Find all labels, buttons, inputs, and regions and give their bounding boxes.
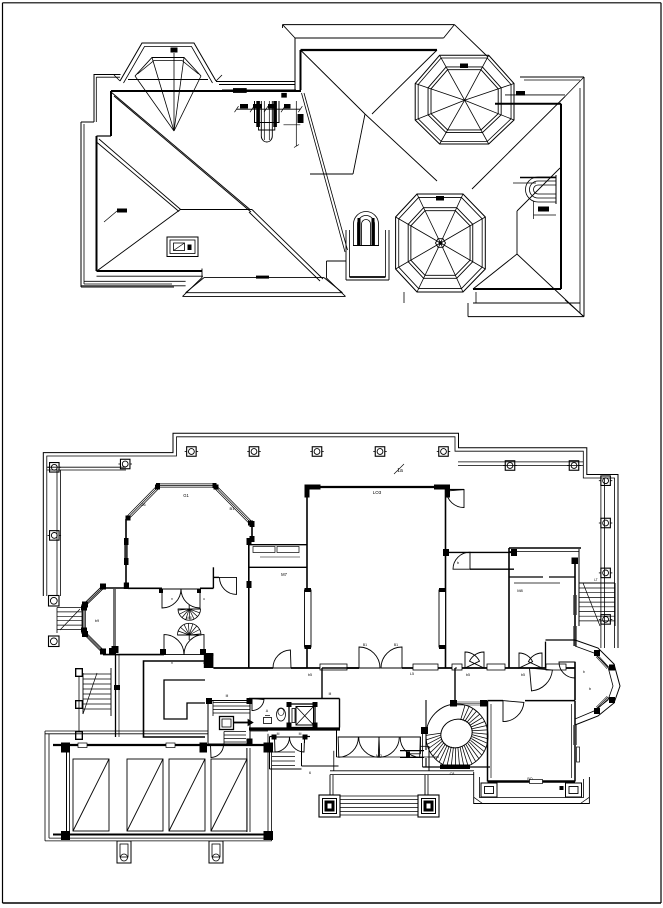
svg-text:u: u xyxy=(203,597,205,601)
svg-text:M: M xyxy=(329,692,332,696)
svg-text:b5: b5 xyxy=(466,673,470,677)
svg-text:MO: MO xyxy=(376,754,382,758)
svg-text:C8: C8 xyxy=(450,772,455,776)
svg-text:6: 6 xyxy=(309,771,311,775)
svg-text:M: M xyxy=(299,732,302,736)
svg-text:1a: 1a xyxy=(397,468,403,474)
svg-text:n: n xyxy=(171,661,173,665)
svg-text:b: b xyxy=(589,687,591,691)
svg-text:B1: B1 xyxy=(363,643,367,647)
svg-text:C6: C6 xyxy=(140,502,146,507)
svg-text:b5: b5 xyxy=(521,673,525,677)
svg-text:LO3: LO3 xyxy=(373,490,382,495)
svg-text:b: b xyxy=(583,670,585,674)
svg-text:b: b xyxy=(457,561,459,565)
svg-text:L5: L5 xyxy=(410,672,414,676)
svg-text:B1: B1 xyxy=(394,643,398,647)
svg-text:b9: b9 xyxy=(95,619,99,623)
svg-text:u: u xyxy=(203,661,205,665)
svg-text:G1: G1 xyxy=(183,493,189,498)
svg-text:M: M xyxy=(226,694,229,698)
svg-text:M5: M5 xyxy=(186,616,191,620)
svg-text:n: n xyxy=(171,597,173,601)
svg-text:M: M xyxy=(277,732,280,736)
svg-text:b5: b5 xyxy=(308,673,312,677)
svg-text:B1: B1 xyxy=(230,506,236,511)
svg-text:LT: LT xyxy=(594,578,598,582)
svg-text:M7: M7 xyxy=(281,572,287,577)
svg-text:M8: M8 xyxy=(517,588,523,593)
